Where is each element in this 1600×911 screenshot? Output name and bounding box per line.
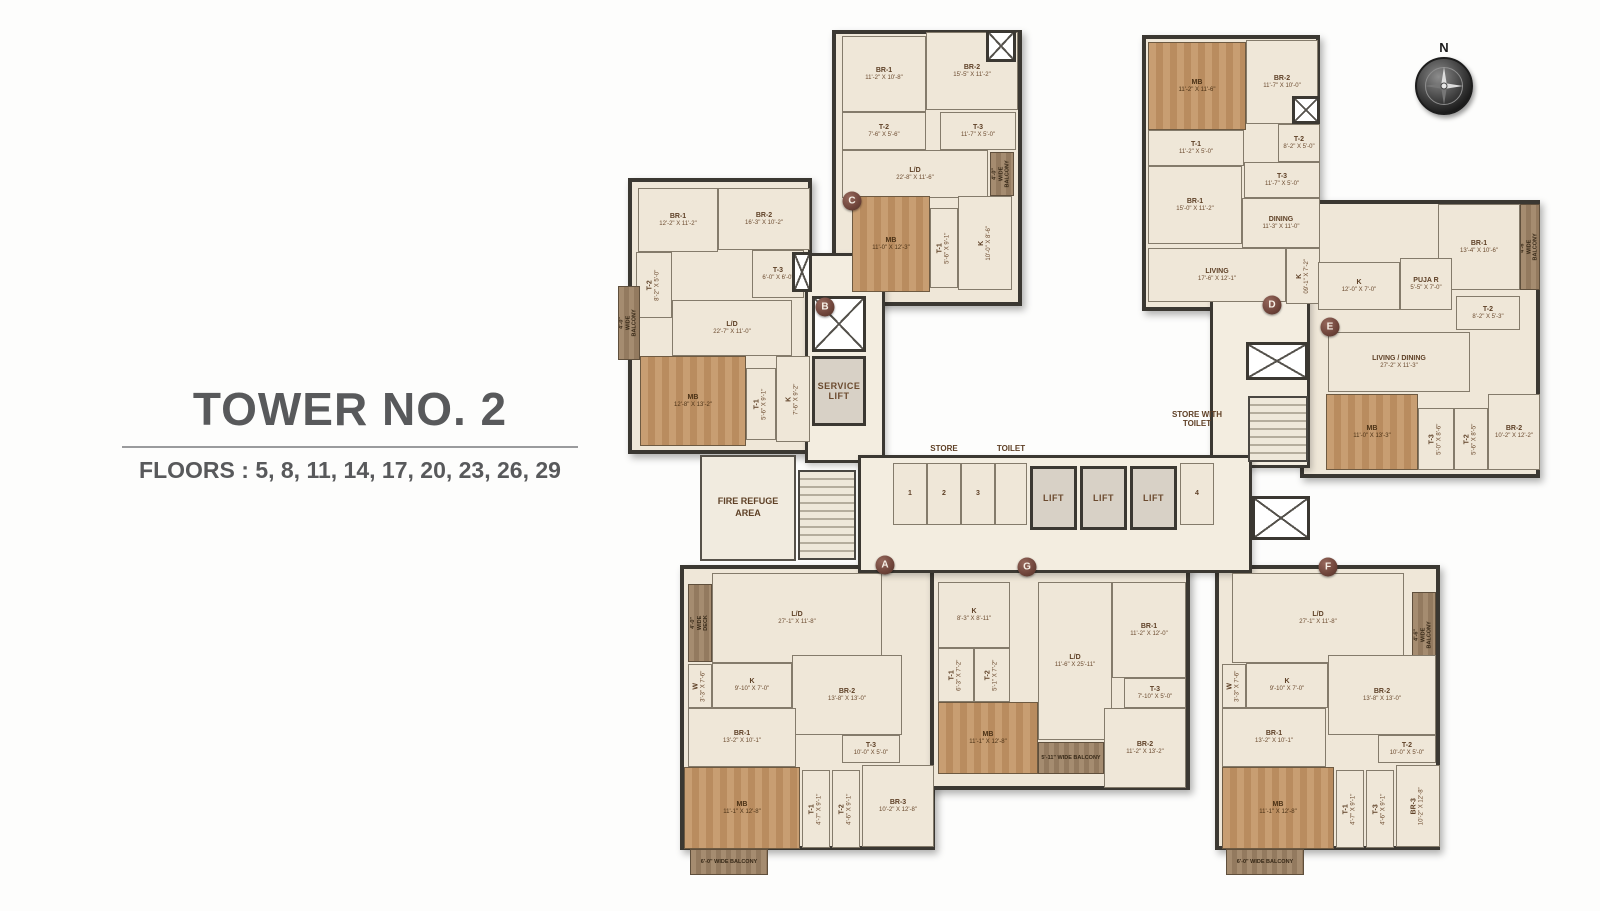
room-dining: DINING11'-3" X 11'-0" xyxy=(1242,198,1320,248)
room-dimensions: 15'-5" X 11'-2" xyxy=(953,72,990,79)
room-name: 4 xyxy=(1195,490,1199,498)
room-k: K8'-3" X 8'-11" xyxy=(938,582,1010,648)
unit-marker-C: C xyxy=(843,192,862,211)
room-name: LIVING xyxy=(1198,268,1236,276)
floors-label: FLOORS : 5, 8, 11, 14, 17, 20, 23, 26, 2… xyxy=(122,457,578,484)
room-dimensions: 12'-0" X 7'-0" xyxy=(1342,287,1377,294)
unit-marker-A: A xyxy=(876,556,895,575)
room-living-dining: LIVING / DINING27'-2" X 11'-3" xyxy=(1328,332,1470,392)
room-dimensions: 11'-3" X 11'-0" xyxy=(1262,224,1299,231)
lift: LIFT xyxy=(1130,466,1177,530)
lift: LIFT xyxy=(1030,466,1077,530)
room-name: K xyxy=(1296,259,1304,294)
room-name: L/D xyxy=(1055,654,1095,662)
room-dimensions: 11'-0" X 12'-3" xyxy=(872,245,909,252)
room-br-2: BR-211'-2" X 13'-2" xyxy=(1104,708,1186,788)
room-dimensions: 11'-1" X 12'-8" xyxy=(969,739,1006,746)
room-dimensions: 4'-7" X 9'-1" xyxy=(1351,793,1358,824)
lift: LIFT xyxy=(1080,466,1127,530)
room-t-2: T-28'-2" X 5'-0" xyxy=(1278,124,1320,162)
room-mb: MB11'-1" X 12'-8" xyxy=(1222,767,1334,849)
room-l-d: L/D27'-1" X 11'-8" xyxy=(712,573,882,663)
room-dimensions: 6'-0" X 6'-0" xyxy=(762,275,793,282)
room-dimensions: 15'-0" X 11'-2" xyxy=(1176,206,1213,213)
staircase xyxy=(798,470,856,560)
room-dimensions: 13'-2" X 10'-1" xyxy=(723,738,761,745)
room-name: L/D xyxy=(896,167,933,175)
room-br-3: BR-310'-2" X 12'-8" xyxy=(1396,765,1440,847)
unit-marker-B: B xyxy=(816,298,835,317)
room-name: MB xyxy=(969,731,1006,739)
room-living: LIVING17'-6" X 12'-1" xyxy=(1148,248,1286,302)
room-dimensions: 8'-2" X 5'-0" xyxy=(1283,144,1314,151)
compass-dial-icon xyxy=(1415,57,1473,115)
room-br-1: BR-111'-2" X 12'-0" xyxy=(1112,582,1186,678)
room-name: LIVING / DINING xyxy=(1372,355,1426,363)
room-name: L/D xyxy=(778,611,815,619)
room-t-1: T-111'-2" X 5'-0" xyxy=(1148,130,1244,166)
room-name: K xyxy=(786,383,794,414)
room-name: LIFT xyxy=(1093,493,1114,503)
room-mb: MB11'-1" X 12'-8" xyxy=(684,767,800,849)
unit-marker-F: F xyxy=(1319,558,1338,577)
room-dimensions: 5'-6" X 8'-5" xyxy=(1472,423,1479,454)
room-name: T-1 xyxy=(1343,793,1351,824)
room-dimensions: 11'-7" X 5'-0" xyxy=(961,132,995,139)
room-name: 3 xyxy=(976,490,980,498)
room-t-2: T-210'-0" X 5'-0" xyxy=(1378,735,1436,763)
room-name: T-2 xyxy=(868,124,899,132)
room-mb: MB11'-1" X 12'-8" xyxy=(938,702,1038,774)
room-dimensions: 11'-7" X 10'-0" xyxy=(1263,83,1300,90)
room-name: MB xyxy=(723,801,760,809)
room-dimensions: 10'-2" X 12'-2" xyxy=(1495,433,1533,440)
room-k: K9'-10" X 7'-0" xyxy=(712,663,792,708)
room-dimensions: 22'-7" X 11'-0" xyxy=(713,329,750,336)
room-dimensions: 13'-2" X 10'-1" xyxy=(1255,738,1293,745)
room-dimensions: 8'-2" X 5'-3" xyxy=(1472,314,1503,321)
room-3: 3 xyxy=(961,463,995,525)
room-br-1: BR-115'-0" X 11'-2" xyxy=(1148,166,1242,244)
room-name: MB xyxy=(1259,801,1296,809)
room-t-3: T-34'-6" X 9'-1" xyxy=(1366,770,1394,848)
room-name: MB xyxy=(674,394,712,402)
room-dimensions: 11'-2" X 11'-6" xyxy=(1178,87,1215,94)
room-name: L/D xyxy=(1299,611,1336,619)
room-br-1: BR-113'-2" X 10'-1" xyxy=(688,708,796,767)
room-dimensions: 22'-8" X 11'-6" xyxy=(896,175,933,182)
room-name: 4'-6" WIDE BALCONY xyxy=(1414,621,1434,648)
room-name: T-2 xyxy=(647,269,655,300)
room-name: BR-2 xyxy=(828,688,866,696)
room-name: 4'-6" WIDE BALCONY xyxy=(1520,233,1540,260)
core-label-store: STORE xyxy=(894,444,994,453)
room-name: 6'-0" WIDE BALCONY xyxy=(701,859,757,866)
unit-marker-G: G xyxy=(1018,558,1037,577)
room-dimensions: 11'-1" X 12'-8" xyxy=(723,809,760,816)
room-name: LIFT xyxy=(1043,493,1064,503)
room-dimensions: 5'-1" X 7'-2" xyxy=(993,659,1000,690)
room-dimensions: 17'-6" X 12'-1" xyxy=(1198,276,1236,283)
room-dimensions: 10'-2" X 12'-8" xyxy=(879,807,917,814)
staircase xyxy=(1248,396,1308,462)
room-dimensions: 13'-8" X 13'-0" xyxy=(828,696,866,703)
room-name: BR-1 xyxy=(659,213,696,221)
room-dimensions: 13'-4" X 10'-6" xyxy=(1460,248,1498,255)
balcony: 4'-6" WIDE BALCONY xyxy=(1520,204,1540,290)
room-dimensions: 13'-8" X 13'-0" xyxy=(1363,696,1401,703)
room-dimensions: 11'-6" X 25'-11" xyxy=(1055,662,1095,669)
room-name: 4'-0" WIDE BALCONY xyxy=(992,160,1012,187)
room-name: T-3 xyxy=(961,124,995,132)
room-br-1: BR-113'-2" X 10'-1" xyxy=(1222,708,1326,767)
balcony: 6'-0" WIDE BALCONY xyxy=(690,849,768,875)
room-name: BR-3 xyxy=(879,799,917,807)
room-name: T-2 xyxy=(1283,136,1314,144)
room-name: 4'-0" WIDE BALCONY xyxy=(619,309,639,336)
room-name: MB xyxy=(872,237,909,245)
room-name: LIFT xyxy=(1143,493,1164,503)
room-k: K12'-0" X 7'-0" xyxy=(1318,262,1400,310)
room-name: T-2 xyxy=(1472,306,1503,314)
room-t-3: T-37'-10" X 5'-0" xyxy=(1124,678,1186,708)
room-name: 4'-0" WIDE DECK xyxy=(690,612,710,634)
room-name: L/D xyxy=(713,321,750,329)
room-dimensions: 4'-6" X 9'-1" xyxy=(1381,793,1388,824)
room-dimensions: 11'-7" X 5'-0" xyxy=(1265,181,1299,188)
room-dimensions: 09'-1" X 7'-2" xyxy=(1304,259,1311,294)
room-br-1: BR-112'-2" X 11'-2" xyxy=(638,188,718,252)
room-dimensions: 5'-0" X 8'-6" xyxy=(1437,423,1444,454)
room-dimensions: 6'-3" X 7'-2" xyxy=(957,659,964,690)
room-name: BR-1 xyxy=(1460,240,1498,248)
room-dimensions: 7'-6" X 9'-2" xyxy=(794,383,801,414)
room-dimensions: 8'-2" X 5'-0" xyxy=(655,269,662,300)
room-name: K xyxy=(957,608,991,616)
room-t-2: T-28'-2" X 5'-0" xyxy=(636,252,672,318)
room-br-1: BR-111'-2" X 10'-8" xyxy=(842,36,926,112)
balcony: 4'-0" WIDE DECK xyxy=(688,584,712,662)
room-l-d: L/D27'-1" X 11'-8" xyxy=(1232,573,1404,663)
room-l-d: L/D22'-7" X 11'-0" xyxy=(672,300,792,356)
room-dimensions: 16'-3" X 10'-2" xyxy=(745,220,783,227)
room-name: W xyxy=(1227,670,1235,701)
room-name: MB xyxy=(1178,79,1215,87)
room-mb: MB11'-0" X 12'-3" xyxy=(852,196,930,292)
room-name: T-1 xyxy=(937,232,945,263)
room-dimensions: 27'-1" X 11'-8" xyxy=(1299,619,1336,626)
balcony: 6'-0" WIDE BALCONY xyxy=(1226,849,1304,875)
room-k: K7'-6" X 9'-2" xyxy=(776,356,810,442)
plan-title-block: TOWER NO. 2 FLOORS : 5, 8, 11, 14, 17, 2… xyxy=(122,382,578,484)
room-name: T-2 xyxy=(1390,742,1425,750)
balcony: 5'-11" WIDE BALCONY xyxy=(1038,742,1104,774)
room-t-3: T-311'-7" X 5'-0" xyxy=(940,112,1016,150)
room-name: K xyxy=(735,678,770,686)
core-label-store-with-toilet: STORE WITH TOILET xyxy=(1161,410,1233,428)
floor-plan: BR-112'-2" X 11'-2"BR-216'-3" X 10'-2"T-… xyxy=(600,8,1560,888)
room-mb: MB11'-0" X 13'-3" xyxy=(1326,394,1418,470)
room-dimensions: 9'-10" X 7'-0" xyxy=(735,686,770,693)
room-dimensions: 27'-1" X 11'-8" xyxy=(778,619,815,626)
room-name: DINING xyxy=(1262,216,1299,224)
room-t-2: T-25'-1" X 7'-2" xyxy=(974,648,1010,702)
room-t-2: T-24'-6" X 9'-1" xyxy=(832,770,860,848)
lift: SERVICE LIFT xyxy=(812,356,866,426)
room-dimensions: 11'-0" X 13'-3" xyxy=(1353,433,1390,440)
room-name: 6'-0" WIDE BALCONY xyxy=(1237,859,1293,866)
duct-shaft xyxy=(792,252,812,292)
room-dimensions: 10'-0" X 5'-0" xyxy=(854,750,889,757)
balcony: 4'-0" WIDE BALCONY xyxy=(618,286,640,360)
room-name: BR-3 xyxy=(1411,787,1419,825)
room-br-2: BR-216'-3" X 10'-2" xyxy=(718,188,810,250)
fire-refuge-area: FIRE REFUGE AREA xyxy=(700,455,796,561)
room-name: T-1 xyxy=(1179,141,1213,149)
room-k: K09'-1" X 7'-2" xyxy=(1286,248,1320,304)
room-name: BR-1 xyxy=(865,67,902,75)
room-name: T-1 xyxy=(809,793,817,824)
room-name: MB xyxy=(1353,425,1390,433)
room-4: 4 xyxy=(1180,463,1214,525)
room-name: K xyxy=(978,226,986,261)
room-dimensions: 9'-10" X 7'-0" xyxy=(1270,686,1305,693)
room-name: BR-1 xyxy=(1255,730,1293,738)
room-name: T-3 xyxy=(1429,423,1437,454)
room-t-2: T-28'-2" X 5'-3" xyxy=(1456,296,1520,330)
room-name: K xyxy=(1270,678,1305,686)
room-name: BR-2 xyxy=(1363,688,1401,696)
room-name: PUJA R xyxy=(1410,277,1441,285)
room-mb: MB12'-8" X 13'-2" xyxy=(640,356,746,446)
room-dimensions: 8'-3" X 8'-11" xyxy=(957,616,991,623)
room-name: T-2 xyxy=(839,793,847,824)
room-puja-r: PUJA R5'-5" X 7'-0" xyxy=(1400,258,1452,310)
room-t-3: T-310'-0" X 5'-0" xyxy=(842,735,900,763)
room-br-3: BR-310'-2" X 12'-8" xyxy=(862,765,934,847)
room-dimensions: 7'-10" X 5'-0" xyxy=(1138,694,1173,701)
room-name: BR-2 xyxy=(1263,75,1300,83)
room-name: 2 xyxy=(942,490,946,498)
room-name: FIRE REFUGE AREA xyxy=(717,496,779,519)
room-w: W3'-3" X 7'-6" xyxy=(1222,664,1246,708)
room-name: W xyxy=(693,670,701,701)
room-name: T-1 xyxy=(949,659,957,690)
room-dimensions: 3'-3" X 7'-6" xyxy=(1235,670,1242,701)
room-dimensions: 11'-2" X 5'-0" xyxy=(1179,149,1213,156)
compass-hub xyxy=(1441,83,1448,90)
room-name: 5'-11" WIDE BALCONY xyxy=(1041,755,1100,762)
room-name: T-3 xyxy=(1138,686,1173,694)
room-name: T-3 xyxy=(854,742,889,750)
title-divider xyxy=(122,446,578,448)
room-dimensions: 11'-2" X 10'-8" xyxy=(865,75,902,82)
duct-shaft xyxy=(1292,96,1320,124)
room-dimensions: 11'-1" X 12'-8" xyxy=(1259,809,1296,816)
room-t-2: T-27'-6" X 5'-6" xyxy=(842,112,926,150)
room-t-1: T-16'-3" X 7'-2" xyxy=(938,648,974,702)
room-dimensions: 4'-7" X 9'-1" xyxy=(817,793,824,824)
room-name: BR-2 xyxy=(1495,425,1533,433)
core-label-toilet: TOILET xyxy=(981,444,1041,453)
room-room xyxy=(995,463,1027,525)
room-name: T-3 xyxy=(1373,793,1381,824)
room-l-d: L/D22'-8" X 11'-6" xyxy=(842,150,988,198)
room-t-3: T-311'-7" X 5'-0" xyxy=(1244,162,1320,198)
room-dimensions: 11'-2" X 13'-2" xyxy=(1126,749,1163,756)
room-t-1: T-15'-6" X 9'-1" xyxy=(746,368,776,440)
room-name: BR-2 xyxy=(953,64,990,72)
room-l-d: L/D11'-6" X 25'-11" xyxy=(1038,582,1112,740)
room-name: T-2 xyxy=(1464,423,1472,454)
room-br-2: BR-213'-8" X 13'-0" xyxy=(792,655,902,735)
tower-title: TOWER NO. 2 xyxy=(122,382,578,436)
room-dimensions: 4'-6" X 9'-1" xyxy=(847,793,854,824)
room-t-1: T-15'-6" X 9'-1" xyxy=(930,208,958,288)
duct-shaft xyxy=(986,30,1016,62)
room-name: K xyxy=(1342,279,1377,287)
unit-marker-D: D xyxy=(1263,296,1282,315)
room-dimensions: 10'-0" X 5'-0" xyxy=(1390,750,1425,757)
room-2: 2 xyxy=(927,463,961,525)
room-dimensions: 3'-3" X 7'-6" xyxy=(701,670,708,701)
room-mb: MB11'-2" X 11'-6" xyxy=(1148,42,1246,130)
room-name: T-3 xyxy=(1265,173,1299,181)
room-dimensions: 12'-2" X 11'-2" xyxy=(659,221,696,228)
room-br-2: BR-213'-8" X 13'-0" xyxy=(1328,655,1436,735)
room-dimensions: 5'-6" X 9'-1" xyxy=(945,232,952,263)
room-dimensions: 11'-2" X 12'-0" xyxy=(1130,631,1167,638)
room-name: BR-1 xyxy=(1130,623,1167,631)
room-name: 1 xyxy=(908,490,912,498)
room-name: T-1 xyxy=(754,388,762,419)
room-name: T-2 xyxy=(985,659,993,690)
duct-shaft xyxy=(1246,342,1308,380)
room-dimensions: 12'-8" X 13'-2" xyxy=(674,402,712,409)
room-t-2: T-25'-6" X 8'-5" xyxy=(1454,408,1488,470)
room-k: K10'-0" X 8'-6" xyxy=(958,196,1012,290)
room-k: K9'-10" X 7'-0" xyxy=(1246,663,1328,708)
room-dimensions: 7'-6" X 5'-6" xyxy=(868,132,899,139)
room-name: BR-2 xyxy=(745,212,783,220)
room-name: SERVICE LIFT xyxy=(815,381,863,401)
room-t-1: T-14'-7" X 9'-1" xyxy=(802,770,830,848)
room-br-2: BR-210'-2" X 12'-2" xyxy=(1488,394,1540,470)
unit-marker-E: E xyxy=(1321,318,1340,337)
room-w: W3'-3" X 7'-6" xyxy=(688,664,712,708)
balcony: 4'-0" WIDE BALCONY xyxy=(990,152,1014,196)
room-name: BR-1 xyxy=(723,730,761,738)
room-name: BR-2 xyxy=(1126,741,1163,749)
room-dimensions: 5'-5" X 7'-0" xyxy=(1410,285,1441,292)
room-dimensions: 10'-0" X 8'-6" xyxy=(986,226,993,261)
compass: N xyxy=(1413,40,1475,115)
duct-shaft xyxy=(1252,496,1310,540)
room-dimensions: 27'-2" X 11'-3" xyxy=(1372,363,1426,370)
room-t-3: T-35'-0" X 8'-6" xyxy=(1418,408,1454,470)
room-1: 1 xyxy=(893,463,927,525)
compass-north-label: N xyxy=(1413,40,1475,55)
room-t-1: T-14'-7" X 9'-1" xyxy=(1336,770,1364,848)
room-dimensions: 10'-2" X 12'-8" xyxy=(1419,787,1426,825)
room-name: BR-1 xyxy=(1176,198,1213,206)
room-name: T-3 xyxy=(762,267,793,275)
room-dimensions: 5'-6" X 9'-1" xyxy=(762,388,769,419)
